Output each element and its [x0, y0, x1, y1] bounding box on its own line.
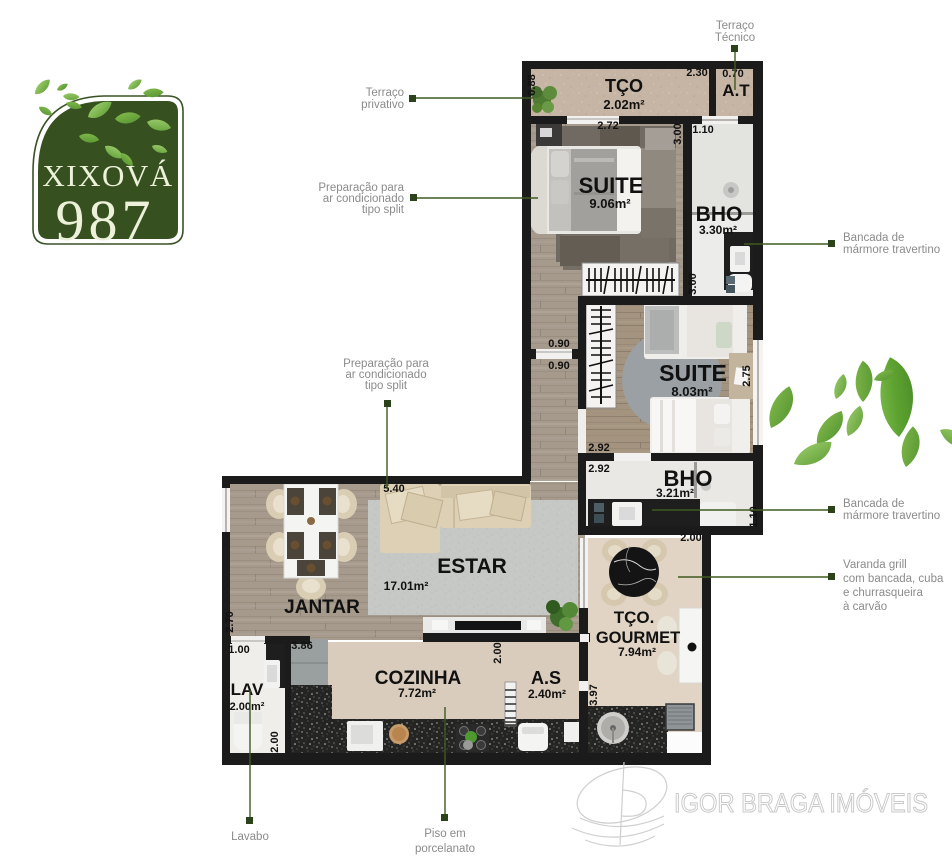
svg-text:A.S: A.S — [531, 668, 561, 688]
svg-text:0.88: 0.88 — [526, 74, 538, 95]
svg-text:LAV: LAV — [231, 680, 264, 699]
svg-text:0.70: 0.70 — [722, 68, 743, 80]
svg-text:2.00m²: 2.00m² — [230, 701, 265, 713]
svg-text:9.06m²: 9.06m² — [589, 196, 631, 211]
svg-text:tipo split: tipo split — [362, 204, 405, 216]
svg-text:2.70: 2.70 — [224, 611, 236, 632]
svg-text:mármore travertino: mármore travertino — [843, 244, 940, 256]
svg-text:mármore travertino: mármore travertino — [843, 510, 940, 522]
svg-text:privativo: privativo — [361, 99, 404, 111]
svg-text:Terraço: Terraço — [366, 87, 404, 99]
svg-text:A.T: A.T — [722, 81, 750, 100]
svg-text:Piso em: Piso em — [424, 828, 466, 840]
svg-text:0.90: 0.90 — [548, 338, 569, 350]
svg-text:2.72: 2.72 — [597, 120, 618, 132]
svg-text:porcelanato: porcelanato — [415, 843, 475, 855]
svg-text:Varanda grill: Varanda grill — [843, 559, 907, 571]
svg-text:2.00: 2.00 — [492, 642, 504, 663]
svg-text:1.10: 1.10 — [692, 124, 713, 136]
svg-text:à carvão: à carvão — [843, 601, 887, 613]
svg-text:7.72m²: 7.72m² — [398, 686, 436, 700]
svg-text:Bancada de: Bancada de — [843, 232, 904, 244]
svg-text:SUITE: SUITE — [659, 360, 727, 386]
svg-text:7.94m²: 7.94m² — [618, 645, 656, 659]
svg-text:3.30m²: 3.30m² — [699, 223, 737, 237]
svg-text:Técnico: Técnico — [715, 32, 755, 44]
svg-text:2.75: 2.75 — [741, 365, 753, 386]
svg-text:IGOR BRAGA IMÓVEIS: IGOR BRAGA IMÓVEIS — [674, 787, 928, 818]
svg-text:2.92: 2.92 — [588, 442, 609, 454]
svg-text:2.00: 2.00 — [680, 532, 701, 544]
svg-text:987: 987 — [56, 188, 155, 253]
svg-text:2.92: 2.92 — [588, 463, 609, 475]
svg-text:Terraço: Terraço — [716, 20, 754, 32]
svg-text:JANTAR: JANTAR — [284, 597, 360, 618]
svg-text:com bancada, cuba: com bancada, cuba — [843, 573, 944, 585]
svg-text:2.30: 2.30 — [686, 67, 707, 79]
svg-text:tipo split: tipo split — [365, 380, 408, 392]
svg-text:2.00: 2.00 — [269, 731, 281, 752]
svg-text:17.01m²: 17.01m² — [384, 579, 429, 593]
svg-text:3.21m²: 3.21m² — [656, 486, 694, 500]
svg-text:3.00: 3.00 — [672, 123, 684, 144]
svg-text:8.03m²: 8.03m² — [671, 384, 713, 399]
svg-text:3.00: 3.00 — [687, 273, 699, 294]
svg-text:TÇO.: TÇO. — [614, 608, 655, 627]
svg-text:SUITE: SUITE — [579, 173, 644, 198]
svg-text:Bancada de: Bancada de — [843, 498, 904, 510]
svg-text:1.00: 1.00 — [228, 644, 249, 656]
svg-text:3.86: 3.86 — [291, 640, 312, 652]
svg-text:e churrasqueira: e churrasqueira — [843, 587, 924, 599]
svg-text:0.90: 0.90 — [548, 360, 569, 372]
svg-text:Lavabo: Lavabo — [231, 831, 269, 843]
svg-text:2.02m²: 2.02m² — [603, 97, 645, 112]
svg-text:ESTAR: ESTAR — [437, 555, 507, 578]
svg-text:3.97: 3.97 — [588, 684, 600, 705]
svg-text:2.40m²: 2.40m² — [528, 687, 566, 701]
svg-text:TÇO: TÇO — [605, 76, 643, 96]
